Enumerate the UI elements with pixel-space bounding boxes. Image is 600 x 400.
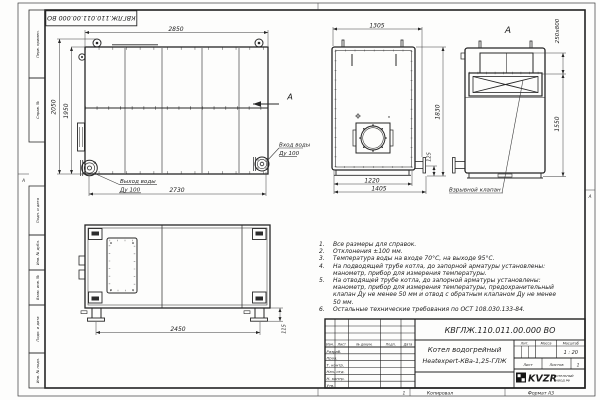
side-dim-texts: 2850 2050 1950 2730 Выход воды Ду 100 Вх… (51, 26, 311, 194)
lifting-lug-left (93, 39, 101, 47)
side-leaders (97, 148, 303, 193)
svg-text:№ докум.: № докум. (355, 342, 372, 346)
svg-text:1550: 1550 (554, 116, 561, 131)
svg-text:2450: 2450 (170, 326, 185, 333)
svg-text:1950: 1950 (63, 103, 70, 118)
svg-text:Инв. № дубл.: Инв. № дубл. (36, 240, 40, 265)
view-side (57, 30, 303, 196)
svg-text:1405: 1405 (371, 185, 386, 192)
note-number: 4. (319, 263, 333, 277)
outlet-label-line1: Выход воды (120, 179, 156, 185)
sheet-frame (18, 3, 595, 396)
svg-text:Пров.: Пров. (327, 356, 338, 361)
valve-callout: Взрывной клапан (449, 187, 501, 193)
plan-hatch (107, 238, 137, 293)
note-item: 4.На подводящей трубе котла, до запорной… (319, 263, 557, 277)
rear-texts: А 250x800 1550 Взрывной клапан (449, 18, 561, 193)
sheets-value: 1 (577, 362, 580, 368)
logo-text: KVZR (528, 374, 557, 385)
outlet-label-line2: Ду 100 (119, 188, 141, 194)
note-text: На отводящей трубе котла, до запорной ар… (333, 277, 557, 306)
rear-pipe-stub (453, 158, 466, 174)
svg-text:125: 125 (426, 152, 432, 162)
note-number: 1. (319, 241, 333, 248)
svg-text:1220: 1220 (364, 177, 379, 184)
note-text: На подводящей трубе котла, до запорной а… (333, 263, 557, 277)
svg-text:Листов: Листов (548, 362, 564, 367)
rear-view-label: А (504, 26, 511, 36)
note-number: 3. (319, 255, 333, 262)
rotated-doc-stamp: КВГЛЖ.110.011.00.000 ВО (46, 11, 137, 26)
svg-text:250x800: 250x800 (555, 18, 561, 43)
svg-text:Нач. отд.: Нач. отд. (327, 369, 345, 374)
view-direction-arrow (253, 101, 279, 106)
svg-text:Масса: Масса (541, 342, 552, 346)
svg-text:Подп.: Подп. (386, 342, 396, 346)
front-pipe-stub (415, 158, 426, 174)
svg-text:Лист: Лист (522, 362, 533, 367)
svg-text:Перв. примен.: Перв. примен. (36, 30, 40, 58)
svg-text:Подп. и дата: Подп. и дата (36, 316, 40, 342)
svg-text:Справ. №: Справ. № (36, 101, 40, 119)
note-item: 2.Отклонения ±100 мм. (319, 248, 557, 255)
svg-text:Инв. № подл.: Инв. № подл. (36, 358, 40, 383)
note-number: 5. (319, 277, 333, 306)
svg-text:Лист: Лист (337, 342, 346, 346)
side-hatch-hinge (78, 123, 85, 151)
lifting-lug-right (255, 39, 263, 47)
view-rear (449, 41, 566, 193)
note-text: Все размеры для справок. (333, 241, 557, 248)
svg-text:1830: 1830 (435, 104, 442, 119)
note-text: Температура воды на входе 70°С, на выход… (333, 255, 557, 262)
water-inlet-flange (254, 157, 270, 171)
note-item: 3.Температура воды на входе 70°С, на вых… (319, 255, 557, 262)
logo-caption-line2: ЗАВОД РФ (554, 379, 571, 383)
svg-text:115: 115 (282, 324, 288, 334)
svg-text:1305: 1305 (369, 22, 384, 29)
technical-notes: 1.Все размеры для справок. 2.Отклонения … (319, 241, 557, 313)
svg-text:Н. контр.: Н. контр. (327, 376, 345, 381)
view-arrow-letter: А (286, 92, 293, 102)
frame-field-labels: Перв. примен. Справ. № Подп. и дата Инв.… (36, 30, 40, 383)
svg-text:Взам. инв. №: Взам. инв. № (36, 275, 40, 300)
svg-text:Разраб.: Разраб. (327, 349, 342, 354)
svg-text:Лит.: Лит. (520, 342, 529, 346)
note-text: Отклонения ±100 мм. (333, 248, 557, 255)
svg-text:2050: 2050 (51, 99, 58, 114)
note-item: 1.Все размеры для справок. (319, 241, 557, 248)
drawing-sheet: А А 1 Копировал Формат А3 Перв. примен. … (0, 0, 600, 400)
doc-number: КВГЛЖ.110.011.00.000 ВО (445, 326, 556, 335)
inlet-label-line2: Ду 100 (278, 151, 300, 157)
product-name-line2: Heatexpert-КВа-1,25-ГЛЖ (423, 357, 507, 365)
corner-plates (89, 229, 267, 304)
rotated-doc-number: КВГЛЖ.110.011.00.000 ВО (47, 14, 135, 22)
company-logo: KVZR КОТЕЛЬНЫЙ ЗАВОД РФ (516, 373, 574, 385)
zone-number: 1 (403, 390, 406, 395)
format-label: Формат А3 (528, 390, 554, 396)
zone-letter-right: А (588, 194, 592, 199)
note-number: 2. (319, 248, 333, 255)
marker-cross (355, 113, 390, 119)
scale-value: 1 : 20 (564, 350, 578, 356)
inlet-label-line1: Вход воды (279, 143, 311, 149)
rear-dim-lines (533, 53, 566, 177)
note-item: 5.На отводящей трубе котла, до запорной … (319, 277, 557, 306)
view-front (332, 27, 446, 194)
note-item: 6.Остальные технические требования по ОС… (319, 306, 557, 313)
svg-text:2850: 2850 (168, 26, 183, 33)
copied-label: Копировал (427, 390, 453, 396)
logo-caption-line1: КОТЕЛЬНЫЙ (554, 373, 574, 378)
note-text: Остальные технические требования по ОСТ … (333, 306, 557, 313)
explosion-valve (469, 73, 542, 96)
front-dim-lines (333, 27, 446, 194)
drawing-canvas: А А 1 Копировал Формат А3 Перв. примен. … (0, 0, 600, 400)
note-number: 6. (319, 306, 333, 313)
svg-text:Изм.: Изм. (326, 342, 334, 346)
svg-text:Масштаб: Масштаб (563, 342, 579, 346)
svg-text:Дата: Дата (403, 342, 413, 346)
zone-letter-left: А (21, 178, 25, 183)
svg-text:2730: 2730 (169, 187, 184, 194)
svg-text:Т. контр.: Т. контр. (327, 362, 345, 367)
burner-flange (353, 123, 393, 153)
view-plan (79, 225, 283, 335)
svg-text:Утв.: Утв. (327, 383, 335, 388)
product-name-line1: Котел водогрейный (428, 346, 502, 354)
svg-text:Подп. и дата: Подп. и дата (36, 197, 40, 223)
plan-legs (81, 308, 268, 321)
